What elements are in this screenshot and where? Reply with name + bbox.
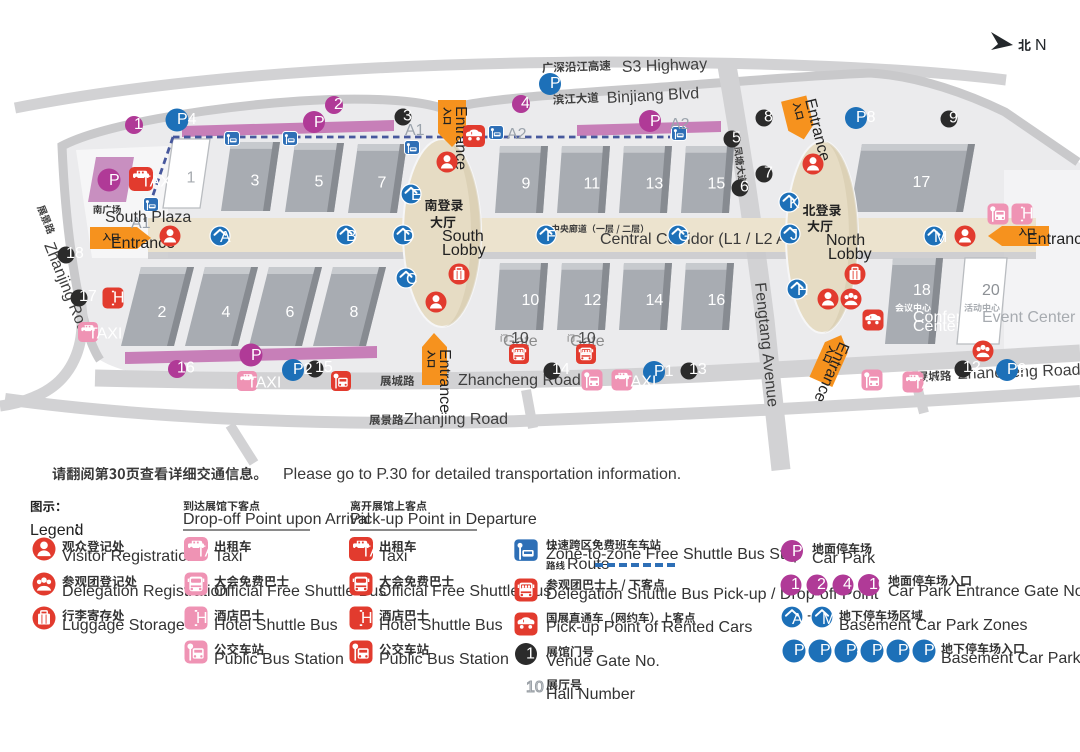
svg-text:18: 18 xyxy=(66,245,84,262)
svg-text:M: M xyxy=(822,611,835,628)
svg-text:2: 2 xyxy=(158,304,167,321)
svg-text:B: B xyxy=(346,228,357,245)
svg-text:P5: P5 xyxy=(550,75,570,92)
svg-text:S3 Highway: S3 Highway xyxy=(622,56,708,76)
svg-text:Venue Gate No.: Venue Gate No. xyxy=(546,653,660,670)
svg-text:TAXI: TAXI xyxy=(141,174,175,191)
svg-text:10: 10 xyxy=(522,292,540,309)
svg-text:17: 17 xyxy=(913,174,931,191)
svg-text:1: 1 xyxy=(134,116,143,133)
svg-text:Pick-up Point of Rented Cars: Pick-up Point of Rented Cars xyxy=(546,619,752,636)
svg-text:16: 16 xyxy=(177,359,195,376)
svg-text:8: 8 xyxy=(350,304,359,321)
svg-text:Public Bus Station: Public Bus Station xyxy=(379,651,509,668)
svg-text:Basement Car Park Zones: Basement Car Park Zones xyxy=(839,617,1028,634)
svg-text:12: 12 xyxy=(584,292,602,309)
svg-text:Event Center: Event Center xyxy=(982,309,1076,326)
svg-text:P: P xyxy=(792,543,803,560)
svg-text:Lobby: Lobby xyxy=(442,242,486,259)
svg-text:1: 1 xyxy=(187,170,196,187)
svg-text:5: 5 xyxy=(732,130,741,147)
svg-text:Public Bus Station: Public Bus Station xyxy=(214,651,344,668)
svg-text:Car Park Entrance Gate No.: Car Park Entrance Gate No. xyxy=(888,583,1080,600)
svg-text:P4: P4 xyxy=(177,111,197,128)
svg-text:6: 6 xyxy=(740,179,749,196)
svg-text:P9: P9 xyxy=(1007,361,1027,378)
svg-text:A2: A2 xyxy=(670,116,690,133)
svg-text:6: 6 xyxy=(286,304,295,321)
svg-text:Zhanjing Road: Zhanjing Road xyxy=(404,411,508,428)
svg-text:20: 20 xyxy=(982,282,1000,299)
svg-text:17: 17 xyxy=(79,288,97,305)
svg-text:P8: P8 xyxy=(856,109,876,126)
svg-text:K: K xyxy=(789,195,800,212)
svg-text:Center: Center xyxy=(913,318,962,335)
svg-text:Visitor Registration: Visitor Registration xyxy=(62,548,196,565)
svg-text:13: 13 xyxy=(689,361,707,378)
svg-text:14: 14 xyxy=(552,361,570,378)
svg-text:9: 9 xyxy=(522,176,531,193)
svg-text:Lobby: Lobby xyxy=(828,246,872,263)
svg-text:P: P xyxy=(109,172,120,189)
svg-text:4: 4 xyxy=(843,576,852,593)
svg-text:13: 13 xyxy=(646,176,664,193)
svg-text:Car Park: Car Park xyxy=(812,550,876,567)
svg-text:Luggage Storage: Luggage Storage xyxy=(62,617,185,634)
svg-text:2: 2 xyxy=(817,576,826,593)
svg-text:M: M xyxy=(934,229,947,246)
svg-text:14: 14 xyxy=(646,292,664,309)
svg-text:P: P xyxy=(251,347,262,364)
svg-text:Delegation Shuttle Bus Pick-up: Delegation Shuttle Bus Pick-up / Drop-of… xyxy=(546,586,879,603)
svg-text:A2: A2 xyxy=(507,126,527,143)
svg-text:Taxi: Taxi xyxy=(214,548,242,565)
svg-text:Entrance: Entrance xyxy=(1027,231,1080,248)
svg-text:7: 7 xyxy=(764,165,773,182)
svg-text:G: G xyxy=(678,228,690,245)
svg-text:Taxi: Taxi xyxy=(379,548,407,565)
svg-text:5: 5 xyxy=(315,174,324,191)
svg-text:TAXI: TAXI xyxy=(913,376,947,393)
svg-text:A: A xyxy=(792,611,803,628)
svg-text:H: H xyxy=(1022,206,1034,223)
svg-text:Basement Car Park Entrance: Basement Car Park Entrance xyxy=(941,650,1080,667)
svg-text:11: 11 xyxy=(584,176,601,193)
svg-text:Pick-up Point in Departure: Pick-up Point in Departure xyxy=(350,511,537,528)
svg-text:N: N xyxy=(1035,37,1047,54)
svg-text:TAXI: TAXI xyxy=(88,325,122,342)
svg-text:Route: Route xyxy=(567,556,610,573)
svg-text:12: 12 xyxy=(963,359,981,376)
svg-text:：: ： xyxy=(73,521,89,538)
svg-text:H: H xyxy=(196,610,208,627)
svg-text:15: 15 xyxy=(315,359,333,376)
svg-text:P: P xyxy=(314,114,325,131)
svg-text:P: P xyxy=(650,113,661,130)
svg-text:3: 3 xyxy=(403,108,412,125)
svg-text:1: 1 xyxy=(526,645,535,662)
svg-text:18: 18 xyxy=(913,282,931,299)
svg-text:Hotel Shuttle Bus: Hotel Shuttle Bus xyxy=(214,617,338,634)
svg-text:Drop-off Point upon Arrival: Drop-off Point upon Arrival xyxy=(183,511,370,528)
svg-text:3: 3 xyxy=(251,173,260,190)
svg-text:Entrance: Entrance xyxy=(436,349,453,413)
svg-text:E: E xyxy=(411,187,422,204)
svg-text:H: H xyxy=(797,282,809,299)
svg-text:C: C xyxy=(406,271,418,288)
svg-text:TAXI: TAXI xyxy=(622,374,656,391)
svg-text:J: J xyxy=(790,227,798,244)
svg-text:F: F xyxy=(546,228,556,245)
svg-text:4: 4 xyxy=(521,95,530,112)
svg-text:16: 16 xyxy=(869,576,887,593)
svg-text:Hall Number: Hall Number xyxy=(546,686,636,703)
svg-text:A: A xyxy=(220,229,231,246)
svg-text:P2: P2 xyxy=(293,361,313,378)
svg-text:16: 16 xyxy=(708,292,726,309)
svg-text:Hotel Shuttle Bus: Hotel Shuttle Bus xyxy=(379,617,503,634)
svg-text:2: 2 xyxy=(334,96,343,113)
svg-text:H: H xyxy=(113,290,125,307)
svg-text:10: 10 xyxy=(526,679,544,696)
svg-text:7: 7 xyxy=(378,175,387,192)
svg-text:P1: P1 xyxy=(654,363,674,380)
svg-text:9: 9 xyxy=(949,110,958,127)
svg-text:15: 15 xyxy=(708,176,726,193)
svg-text:8: 8 xyxy=(764,109,773,126)
svg-text:TAXI: TAXI xyxy=(247,374,281,391)
svg-text:Please go to P.30 for detailed: Please go to P.30 for detailed transport… xyxy=(283,466,681,483)
svg-text:4: 4 xyxy=(222,304,231,321)
svg-text:1: 1 xyxy=(791,576,800,593)
svg-text:D: D xyxy=(403,228,415,245)
svg-text:South Plaza: South Plaza xyxy=(105,209,191,226)
svg-text:H: H xyxy=(361,610,373,627)
